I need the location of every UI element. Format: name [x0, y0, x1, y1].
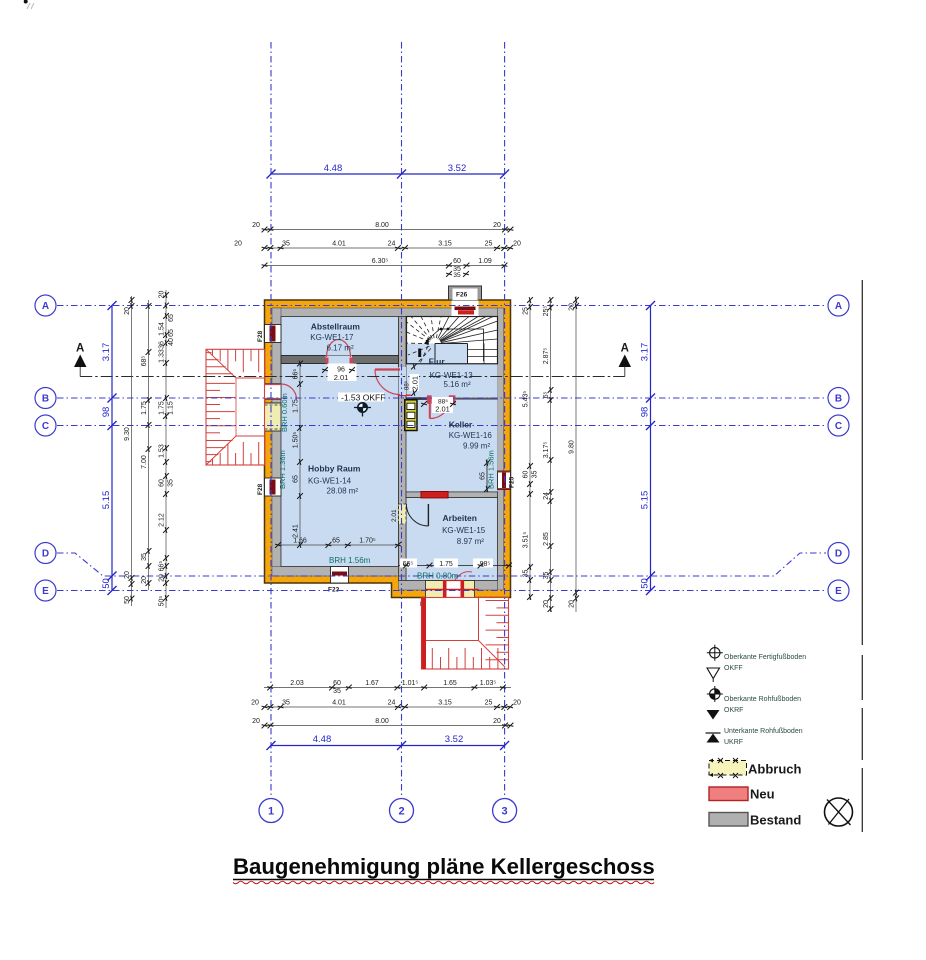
- svg-text:66⁵: 66⁵: [159, 561, 166, 572]
- svg-text:C: C: [835, 421, 842, 432]
- svg-text:OKRF: OKRF: [724, 707, 743, 714]
- svg-text:98: 98: [101, 407, 112, 418]
- svg-text:98: 98: [640, 407, 651, 418]
- svg-text:6.30⁵: 6.30⁵: [372, 258, 389, 265]
- svg-text:1.67: 1.67: [365, 680, 379, 687]
- svg-text:Unterkante Rohfußboden: Unterkante Rohfußboden: [724, 728, 803, 735]
- svg-text:20: 20: [569, 600, 576, 608]
- svg-text:20: 20: [159, 291, 166, 299]
- svg-text:2.03: 2.03: [290, 680, 304, 687]
- svg-text:3.17: 3.17: [640, 343, 651, 362]
- svg-text:Baugenehmigung pläne Kellerges: Baugenehmigung pläne Kellergeschoss: [233, 854, 655, 879]
- svg-text:1.03⁵: 1.03⁵: [480, 680, 497, 687]
- svg-text:KG-WE1-16: KG-WE1-16: [449, 431, 493, 440]
- svg-text:D: D: [835, 549, 842, 560]
- svg-text:6.17 m²: 6.17 m²: [327, 344, 354, 353]
- svg-text:20: 20: [124, 307, 131, 315]
- svg-text:3.51⁵: 3.51⁵: [523, 532, 530, 549]
- svg-text:A: A: [76, 343, 84, 355]
- svg-text:1.15: 1.15: [168, 401, 175, 415]
- svg-text:1.75: 1.75: [439, 561, 453, 568]
- svg-text:1.09: 1.09: [478, 258, 492, 265]
- svg-text:20: 20: [493, 222, 501, 229]
- svg-text:88⁵: 88⁵: [404, 380, 411, 390]
- svg-text:65: 65: [293, 475, 300, 483]
- svg-text:50: 50: [640, 578, 651, 589]
- svg-text:65: 65: [480, 472, 487, 480]
- svg-text:5.43⁵: 5.43⁵: [523, 391, 530, 408]
- svg-text:1.01⁵: 1.01⁵: [402, 680, 419, 687]
- svg-text:1.54: 1.54: [159, 322, 166, 336]
- svg-text:68⁵: 68⁵: [141, 356, 148, 367]
- svg-text:KG-WE1-13: KG-WE1-13: [430, 371, 474, 380]
- svg-text:20: 20: [513, 700, 521, 707]
- svg-text:25⁵: 25⁵: [543, 306, 550, 317]
- svg-text:35: 35: [333, 688, 341, 695]
- svg-text:BRH 1.56m: BRH 1.56m: [329, 556, 371, 565]
- svg-text:A: A: [621, 343, 629, 355]
- svg-text:KG-WE1-17: KG-WE1-17: [310, 333, 354, 342]
- svg-text:UKRF: UKRF: [724, 739, 743, 746]
- svg-text:60: 60: [523, 471, 530, 479]
- svg-text:20: 20: [124, 571, 131, 579]
- svg-text:35: 35: [282, 241, 290, 248]
- svg-text:35: 35: [453, 272, 461, 279]
- svg-text:1.65: 1.65: [443, 680, 457, 687]
- svg-text:35: 35: [141, 553, 148, 561]
- svg-text:8.00: 8.00: [375, 718, 389, 725]
- svg-text:KG-WE1-14: KG-WE1-14: [308, 476, 352, 485]
- svg-text:1: 1: [268, 806, 274, 818]
- svg-text:3.15: 3.15: [438, 241, 452, 248]
- svg-text:4.01: 4.01: [332, 700, 346, 707]
- svg-text:OKFF: OKFF: [724, 665, 743, 672]
- svg-text:-1.53 OKFF: -1.53 OKFF: [341, 393, 385, 403]
- svg-text:1.75: 1.75: [141, 401, 148, 415]
- svg-text:7.00: 7.00: [141, 455, 148, 469]
- svg-text:A: A: [42, 301, 49, 312]
- svg-text:50⁵: 50⁵: [159, 596, 166, 607]
- svg-text:BRH 1.36m: BRH 1.36m: [278, 450, 287, 489]
- svg-text:1.70⁵: 1.70⁵: [359, 538, 376, 545]
- svg-text:9.80: 9.80: [569, 440, 576, 454]
- svg-text:3.52: 3.52: [445, 734, 464, 745]
- svg-text:Abstellraum: Abstellraum: [311, 322, 361, 332]
- svg-text:3.15: 3.15: [438, 700, 452, 707]
- svg-text:Bestand: Bestand: [750, 813, 801, 828]
- svg-text:35: 35: [532, 471, 539, 479]
- svg-text:60: 60: [333, 680, 341, 687]
- svg-text:Oberkante Fertigfußboden: Oberkante Fertigfußboden: [724, 654, 806, 661]
- svg-text:D: D: [42, 549, 49, 560]
- svg-text:1.33: 1.33: [159, 349, 166, 363]
- svg-text:5.15: 5.15: [640, 491, 651, 510]
- svg-text:F28: F28: [257, 483, 264, 495]
- svg-text:60: 60: [159, 479, 166, 487]
- svg-text:2.87⁵: 2.87⁵: [543, 348, 550, 365]
- svg-text:1.75: 1.75: [293, 399, 300, 413]
- svg-text:20: 20: [569, 303, 576, 311]
- svg-text:BRH 1.56m: BRH 1.56m: [487, 450, 496, 489]
- svg-text:50: 50: [124, 596, 131, 604]
- svg-text:A: A: [835, 301, 842, 312]
- svg-text:9.30: 9.30: [124, 427, 131, 441]
- svg-text:Keller: Keller: [449, 419, 473, 429]
- svg-text:65: 65: [168, 314, 175, 322]
- svg-text:5.15: 5.15: [101, 491, 112, 510]
- svg-text:2.01: 2.01: [334, 373, 349, 382]
- svg-text:4.01: 4.01: [332, 241, 346, 248]
- svg-text:Flur: Flur: [429, 357, 446, 367]
- svg-text:50: 50: [101, 578, 112, 589]
- svg-text:1.50⁵: 1.50⁵: [293, 432, 300, 449]
- svg-text:C: C: [42, 421, 49, 432]
- svg-text:24: 24: [388, 241, 396, 248]
- svg-text:25: 25: [485, 241, 493, 248]
- svg-text:66⁵: 66⁵: [293, 369, 300, 380]
- svg-text:3.52: 3.52: [448, 163, 467, 174]
- svg-text:20: 20: [234, 241, 242, 248]
- svg-text:1.53: 1.53: [159, 444, 166, 458]
- svg-text:35: 35: [543, 572, 550, 580]
- svg-text:36: 36: [159, 341, 166, 349]
- svg-text:35: 35: [168, 479, 175, 487]
- svg-text:25: 25: [485, 700, 493, 707]
- svg-text:4.48: 4.48: [313, 734, 332, 745]
- svg-text:20: 20: [252, 222, 260, 229]
- svg-text:60: 60: [453, 258, 461, 265]
- svg-text:KG-WE1-15: KG-WE1-15: [442, 526, 486, 535]
- svg-text:Oberkante Rohfußboden: Oberkante Rohfußboden: [724, 696, 801, 703]
- svg-text:F25: F25: [509, 476, 516, 488]
- svg-text:28.08 m²: 28.08 m²: [327, 487, 359, 496]
- svg-text:25: 25: [523, 307, 530, 315]
- svg-text:Abbruch: Abbruch: [748, 762, 802, 777]
- svg-text:6⁵: 6⁵: [543, 392, 550, 399]
- svg-text:40: 40: [168, 338, 175, 346]
- svg-text:35: 35: [523, 570, 530, 578]
- svg-text:8.00: 8.00: [375, 222, 389, 229]
- svg-text:F28: F28: [257, 330, 264, 342]
- svg-text:2.12: 2.12: [159, 513, 166, 527]
- svg-text:2.41: 2.41: [293, 524, 300, 538]
- svg-text:E: E: [835, 586, 842, 597]
- svg-text:20: 20: [543, 600, 550, 608]
- svg-text:3.17⁵: 3.17⁵: [543, 442, 550, 459]
- svg-text:3.17: 3.17: [101, 343, 112, 362]
- svg-text:B: B: [42, 394, 49, 405]
- svg-text:20: 20: [252, 718, 260, 725]
- svg-text:2.01: 2.01: [411, 376, 420, 391]
- svg-text:24: 24: [388, 700, 396, 707]
- svg-text:B: B: [835, 394, 842, 405]
- svg-text:4.48: 4.48: [324, 163, 343, 174]
- svg-text:20: 20: [251, 700, 259, 707]
- svg-text:20: 20: [159, 574, 166, 582]
- svg-text:Arbeiten: Arbeiten: [443, 513, 477, 523]
- svg-text:BRH 0.60m: BRH 0.60m: [280, 393, 289, 432]
- svg-text:3: 3: [502, 806, 508, 818]
- svg-text:9.99 m²: 9.99 m²: [463, 442, 490, 451]
- svg-text:BRH 0.80m: BRH 0.80m: [417, 572, 459, 581]
- svg-text:2.85: 2.85: [543, 532, 550, 546]
- svg-text:35: 35: [282, 700, 290, 707]
- svg-text:20: 20: [493, 718, 501, 725]
- svg-text:Neu: Neu: [750, 787, 775, 802]
- svg-text:E: E: [42, 586, 49, 597]
- svg-text:Hobby Raum: Hobby Raum: [308, 464, 361, 474]
- svg-text:2.01: 2.01: [391, 509, 398, 522]
- svg-text:65: 65: [168, 329, 175, 337]
- svg-text:2.01: 2.01: [435, 405, 450, 414]
- svg-text:24: 24: [543, 492, 550, 500]
- svg-text:1.75: 1.75: [159, 401, 166, 415]
- svg-text:2: 2: [398, 806, 404, 818]
- svg-text:5.16 m²: 5.16 m²: [444, 380, 471, 389]
- svg-text:F26: F26: [456, 292, 468, 299]
- svg-text:20: 20: [141, 576, 148, 584]
- svg-text:20: 20: [513, 241, 521, 248]
- svg-text:8.97 m²: 8.97 m²: [457, 537, 484, 546]
- svg-text:.65: .65: [330, 538, 340, 545]
